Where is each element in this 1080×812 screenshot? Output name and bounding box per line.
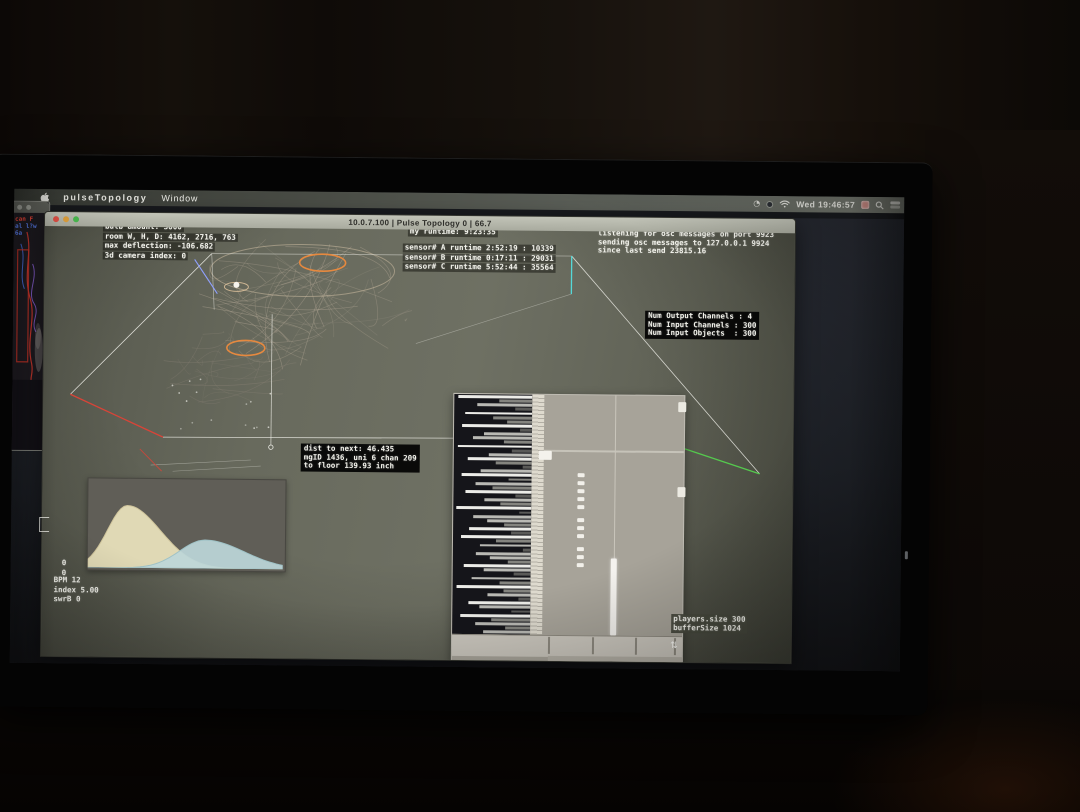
background-window-titlebar[interactable] [11, 202, 49, 213]
window-dot-icon[interactable] [26, 205, 31, 210]
level-fader[interactable] [610, 558, 617, 635]
room-background-right [925, 130, 1080, 730]
app-window: 10.0.7.100 | Pulse Topology 0 | 66.7 [40, 211, 796, 664]
meter-bar [519, 511, 531, 514]
event-dash [578, 481, 585, 485]
meter-bar [458, 444, 532, 448]
meter-bar [478, 403, 533, 406]
meter-bar [508, 478, 531, 481]
meter-bar [491, 618, 530, 621]
display-status-icon[interactable] [766, 200, 773, 207]
channel-meters [452, 394, 532, 635]
meter-bar [492, 486, 531, 489]
meter-bar [473, 436, 532, 439]
meter-bar [465, 412, 532, 416]
room-edge-red-2 [140, 449, 162, 471]
event-dash [577, 563, 584, 567]
meter-bar [523, 548, 531, 551]
meter-bar [519, 598, 531, 601]
meter-bar [468, 457, 532, 460]
meter-bar [505, 626, 530, 629]
event-dash [577, 547, 584, 551]
transport-button[interactable]: ■ [581, 656, 615, 663]
meter-bar [511, 610, 531, 613]
meter-bar [516, 495, 532, 498]
minimize-button[interactable] [63, 216, 69, 222]
meter-bar [503, 589, 530, 592]
event-dash [578, 473, 585, 477]
osc-info-block: listening for osc messages on port 9923s… [598, 229, 774, 256]
transport-button[interactable]: ⊓ [615, 656, 649, 663]
meter-bar [458, 395, 532, 399]
meter-bar [496, 540, 531, 543]
meter-bar [483, 630, 530, 633]
meter-bar [471, 577, 530, 580]
window-dot-icon[interactable] [17, 205, 22, 210]
wifi-icon[interactable] [779, 200, 790, 208]
menu-clock[interactable]: Wed 19:46:57 [796, 199, 855, 210]
point-dots [171, 378, 271, 430]
meter-bar [487, 519, 531, 522]
meter-bar [465, 490, 531, 494]
bulb-highlight [233, 282, 239, 288]
histogram-panel [87, 477, 287, 572]
meter-bar [496, 461, 532, 464]
meter-bar [499, 581, 530, 584]
monitor-power-led [905, 551, 908, 559]
meter-bar [493, 416, 532, 419]
menu-bar: pulseTopology Window ◔ Wed 19:46:57 [14, 189, 904, 214]
meter-bar [511, 532, 531, 535]
monitor: can F al l?w 6a pu [0, 154, 933, 716]
dist-block: dist to next: 46.435mgID 1436, uni 6 cha… [301, 443, 420, 472]
meter-bar [500, 400, 533, 403]
toolbar-divider [635, 638, 637, 655]
meter-bar [513, 573, 530, 576]
time-machine-icon[interactable]: ◔ [753, 200, 760, 208]
event-dash [577, 505, 584, 509]
distribution-chart [88, 478, 284, 569]
orange-ring-top [300, 254, 346, 271]
resize-tab-top[interactable] [678, 402, 686, 412]
bulb-info-block: bulb amount: 3000room W, H, D: 4162, 271… [103, 226, 238, 262]
meter-bar [504, 441, 532, 444]
meter-bar [520, 429, 532, 432]
event-dash [577, 518, 584, 522]
cluster-outline-ellipse [210, 244, 394, 298]
meter-bar [456, 585, 530, 589]
meter-bar [505, 523, 532, 526]
room-edge-red [70, 394, 163, 437]
meter-bar [489, 453, 532, 456]
zoom-button[interactable] [73, 216, 79, 222]
meter-bar [512, 449, 532, 452]
scroll-toggle-icon[interactable]: ⇅ [668, 637, 680, 655]
plumb-marker [269, 445, 273, 449]
meter-bar [480, 469, 531, 472]
meter-bar [488, 593, 531, 596]
meter-bar [485, 498, 532, 501]
edge-bracket-mark [39, 517, 49, 532]
meter-bar [456, 506, 531, 510]
resize-tab-bottom[interactable] [677, 487, 685, 497]
audio-panel: ⇅ ▶■⊓● [451, 393, 686, 663]
close-button[interactable] [53, 216, 59, 222]
meter-bar [461, 473, 531, 477]
meter-bar [500, 503, 531, 506]
plumb-line [271, 314, 272, 445]
menu-item-window[interactable]: Window [161, 193, 198, 203]
bpm-stats-block: BPM 12index 5.00swrB 0 [53, 576, 98, 605]
window-content: bulb amount: 3000room W, H, D: 4162, 271… [41, 226, 795, 663]
meter-bar [507, 560, 530, 563]
event-dash [577, 489, 584, 493]
meter-bar [476, 552, 531, 555]
recording-status-icon[interactable] [861, 201, 869, 209]
meter-bar [490, 556, 531, 559]
event-dash [577, 534, 584, 538]
sensor-runtime-block: sensor# A runtime 2:52:19 : 10339sensor#… [403, 243, 556, 273]
meter-bar [461, 535, 531, 539]
meter-bar [479, 544, 530, 547]
position-marker[interactable] [539, 451, 552, 460]
event-dash [577, 526, 584, 530]
control-center-icon[interactable] [890, 201, 900, 209]
meter-bar [473, 515, 532, 518]
toolbar-divider [592, 637, 594, 654]
search-icon[interactable] [875, 200, 884, 209]
meter-bar [484, 432, 532, 435]
meter-bar [480, 606, 531, 609]
meter-bar [462, 424, 532, 428]
room-background-top [0, 0, 1080, 175]
menu-app-name[interactable]: pulseTopology [63, 192, 147, 203]
panel-toolbar [452, 634, 682, 658]
meter-bar [460, 614, 530, 618]
meter-bar [515, 408, 532, 411]
channels-block: Num Output Channels : 4Num Input Channel… [645, 311, 760, 340]
event-dash [577, 555, 584, 559]
meter-bar [522, 466, 531, 469]
meter-bar [476, 622, 531, 625]
audio-stats-block: players.size 300bufferSize 1024 [671, 614, 747, 634]
meter-bar [475, 482, 531, 485]
meter-bar [507, 420, 532, 423]
meter-bar [468, 601, 530, 604]
screen: can F al l?w 6a pu [10, 189, 905, 672]
window-title: 10.0.7.100 | Pulse Topology 0 | 66.7 [348, 217, 491, 227]
meter-bar [464, 564, 531, 568]
toolbar-divider [548, 637, 550, 654]
meter-bar [484, 568, 531, 571]
meter-bar [469, 527, 531, 530]
event-dash [577, 497, 584, 501]
transport-button[interactable]: ● [648, 657, 682, 663]
